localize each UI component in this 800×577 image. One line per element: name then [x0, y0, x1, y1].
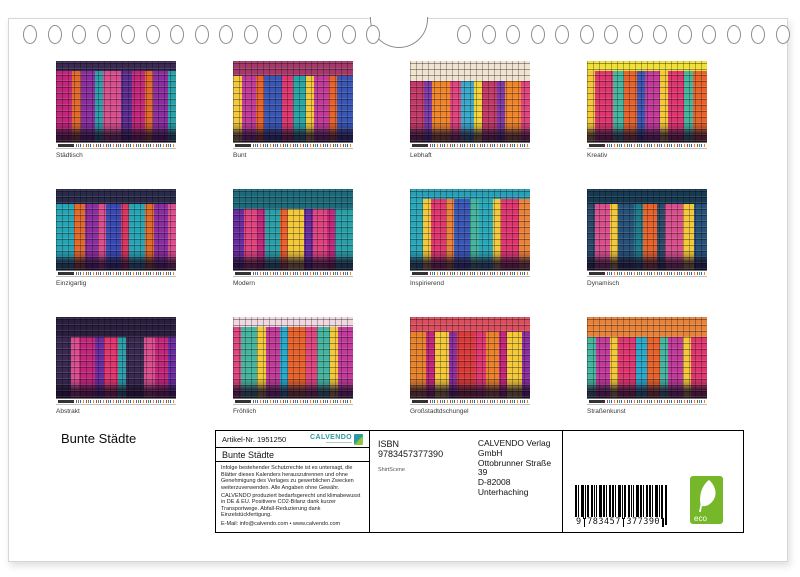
- binding-hole: [366, 25, 380, 44]
- barcode-bar: [661, 485, 663, 519]
- binding-hole: [317, 25, 331, 44]
- barcode-number: 9 783457 377390: [575, 517, 675, 527]
- spiral-binding: [9, 24, 787, 44]
- barcode-bar: [652, 485, 653, 519]
- thumbnail-label: Modern: [233, 280, 353, 288]
- barcode-bar: [585, 485, 586, 519]
- product-info-table: Artikel-Nr. 1951250 CALVENDO Bunte Städt…: [215, 430, 746, 533]
- barcode-bar: [636, 485, 639, 519]
- artwork-preview: [56, 317, 176, 398]
- legal-paragraph: Infolge bestehender Schutzrechte ist es …: [221, 465, 364, 491]
- mini-date-ticks: [76, 272, 174, 275]
- artwork-preview: [410, 61, 530, 142]
- mini-date-ticks: [253, 272, 351, 275]
- binding-hole: [506, 25, 520, 44]
- mini-date-strip: [587, 142, 707, 148]
- mini-month-name: [589, 144, 605, 147]
- artwork-preview: [233, 317, 353, 398]
- barcode-bar: [649, 485, 651, 519]
- thumbnail-label: Großstadtdschungel: [410, 408, 530, 416]
- binding-hole: [121, 25, 135, 44]
- publisher-city: D-82008 Unterhaching: [478, 477, 529, 497]
- barcode-bar: [622, 485, 623, 519]
- month-thumbnail: Kreativ: [587, 61, 707, 160]
- binding-hole: [72, 25, 86, 44]
- barcode-bar: [665, 485, 667, 525]
- mini-date-ticks: [430, 144, 528, 147]
- mini-date-strip: [410, 398, 530, 404]
- barcode-bar: [631, 485, 632, 519]
- mini-month-name: [235, 144, 251, 147]
- eco-logo: eco: [690, 476, 723, 524]
- mini-date-strip: [587, 270, 707, 276]
- thumbnail-label: Bunt: [233, 152, 353, 160]
- thumbnail-label: Einzigartig: [56, 280, 176, 288]
- month-thumbnail: Bunt: [233, 61, 353, 160]
- barcode-bar: [603, 485, 605, 519]
- mini-date-strip: [410, 142, 530, 148]
- thumbnail-label: Städtisch: [56, 152, 176, 160]
- mini-month-name: [412, 272, 428, 275]
- legal-paragraph: E-Mail: info@calvendo.com • www.calvendo…: [221, 521, 364, 527]
- barcode-bar: [581, 485, 584, 519]
- binding-hole: [268, 25, 282, 44]
- publisher-street: Ottobrunner Straße 39: [478, 458, 551, 478]
- barcode-bar: [633, 485, 634, 519]
- publisher-name: CALVENDO Verlag GmbH: [478, 438, 551, 458]
- barcode-bar: [628, 485, 630, 519]
- mini-month-name: [589, 400, 605, 403]
- artwork-preview: [587, 317, 707, 398]
- ean-barcode: 9 783457 377390: [575, 485, 675, 527]
- mini-date-ticks: [607, 400, 705, 403]
- binding-hole: [604, 25, 618, 44]
- barcode-bar: [646, 485, 648, 519]
- barcode-guard: [584, 518, 586, 527]
- binding-hole: [48, 25, 62, 44]
- barcode-bar: [591, 485, 593, 519]
- barcode-bar: [606, 485, 607, 519]
- month-thumbnail: Lebhaft: [410, 61, 530, 160]
- artwork-preview: [233, 61, 353, 142]
- barcode-bar: [659, 485, 660, 519]
- eco-label: eco: [694, 514, 707, 523]
- calvendo-logo: CALVENDO: [310, 434, 363, 445]
- mini-date-ticks: [253, 144, 351, 147]
- binding-hole: [776, 25, 790, 44]
- barcode-bar: [587, 485, 589, 519]
- mini-date-ticks: [607, 144, 705, 147]
- artwork-preview: [587, 189, 707, 270]
- binding-hole: [629, 25, 643, 44]
- month-thumbnail: Modern: [233, 189, 353, 288]
- mini-date-strip: [56, 270, 176, 276]
- mini-date-ticks: [607, 272, 705, 275]
- mini-date-strip: [56, 398, 176, 404]
- mini-month-name: [58, 144, 74, 147]
- artwork-preview: [56, 61, 176, 142]
- thumbnail-label: Straßenkunst: [587, 408, 707, 416]
- mini-date-ticks: [430, 272, 528, 275]
- binding-hole: [580, 25, 594, 44]
- binding-hole: [146, 25, 160, 44]
- calendar-title: Bunte Städte: [61, 431, 136, 446]
- legal-paragraph: CALVENDO produziert bedarfsgerecht und k…: [221, 493, 364, 519]
- barcode-guard: [623, 518, 625, 527]
- mini-date-ticks: [253, 400, 351, 403]
- thumbnail-label: Inspirierend: [410, 280, 530, 288]
- binding-hole: [293, 25, 307, 44]
- binding-hole: [342, 25, 356, 44]
- artwork-preview: [410, 189, 530, 270]
- binding-hole: [727, 25, 741, 44]
- barcode-bar: [615, 485, 616, 519]
- binding-hole: [170, 25, 184, 44]
- mini-date-strip: [233, 142, 353, 148]
- binding-hole: [702, 25, 716, 44]
- mini-date-strip: [410, 270, 530, 276]
- thumbnail-label: Dynamisch: [587, 280, 707, 288]
- mini-month-name: [412, 400, 428, 403]
- mini-date-strip: [233, 398, 353, 404]
- month-thumbnail: Großstadtdschungel: [410, 317, 530, 416]
- calendar-title-cell: Bunte Städte: [215, 447, 370, 462]
- thumbnail-label: Lebhaft: [410, 152, 530, 160]
- thumbnail-label: Abstrakt: [56, 408, 176, 416]
- mini-month-name: [58, 400, 74, 403]
- month-thumbnail: Dynamisch: [587, 189, 707, 288]
- month-thumbnail: Einzigartig: [56, 189, 176, 288]
- artwork-preview: [410, 317, 530, 398]
- binding-hole: [244, 25, 258, 44]
- barcode-bar: [640, 485, 642, 519]
- thumbnail-label: Kreativ: [587, 152, 707, 160]
- mini-date-ticks: [76, 144, 174, 147]
- calvendo-logo-text: CALVENDO: [310, 434, 352, 441]
- binding-hole: [219, 25, 233, 44]
- month-thumbnail: Abstrakt: [56, 317, 176, 416]
- barcode-bar: [643, 485, 644, 519]
- barcode-bar: [624, 485, 626, 519]
- legal-text-cell: Infolge bestehender Schutzrechte ist es …: [215, 461, 370, 533]
- month-thumbnail: Städtisch: [56, 61, 176, 160]
- isbn-text: ISBN 9783457377390: [378, 439, 453, 459]
- thumbnail-label: Fröhlich: [233, 408, 353, 416]
- author-credit: ShirtScene: [378, 467, 405, 473]
- barcode-bar: [594, 485, 595, 519]
- barcode-bar: [596, 485, 597, 519]
- month-thumbnail: Straßenkunst: [587, 317, 707, 416]
- mini-date-strip: [56, 142, 176, 148]
- leaf-icon: [695, 479, 719, 513]
- binding-hole: [195, 25, 209, 44]
- month-thumbnail: Inspirierend: [410, 189, 530, 288]
- artwork-preview: [56, 189, 176, 270]
- barcode-bar: [612, 485, 614, 519]
- binding-hole: [97, 25, 111, 44]
- artwork-preview: [233, 189, 353, 270]
- calvendo-logo-tagline: [326, 442, 352, 444]
- article-number-cell: Artikel-Nr. 1951250 CALVENDO: [215, 430, 370, 448]
- barcode-guard: [662, 518, 664, 527]
- calvendo-logo-icon: [354, 434, 363, 445]
- binding-hole: [678, 25, 692, 44]
- mini-date-strip: [233, 270, 353, 276]
- article-number: Artikel-Nr. 1951250: [222, 435, 286, 444]
- binding-hole: [23, 25, 37, 44]
- mini-date-strip: [587, 398, 707, 404]
- barcode-bar: [578, 485, 579, 519]
- publisher-address: CALVENDO Verlag GmbH Ottobrunner Straße …: [478, 439, 562, 498]
- mini-month-name: [235, 400, 251, 403]
- calendar-back-cover-page: StädtischBuntLebhaftKreativEinzigartigMo…: [8, 18, 788, 562]
- binding-hole: [653, 25, 667, 44]
- barcode-bar: [599, 485, 602, 519]
- binding-hole: [457, 25, 471, 44]
- mini-date-ticks: [430, 400, 528, 403]
- artwork-preview: [587, 61, 707, 142]
- month-thumbnail-grid: StädtischBuntLebhaftKreativEinzigartigMo…: [56, 61, 707, 416]
- barcode-bar: [609, 485, 611, 519]
- barcode-bar: [655, 485, 658, 519]
- mini-month-name: [235, 272, 251, 275]
- calendar-title-small: Bunte Städte: [222, 450, 274, 460]
- binding-hole: [751, 25, 765, 44]
- mini-month-name: [58, 272, 74, 275]
- mini-date-ticks: [76, 400, 174, 403]
- barcode-cell: 9 783457 377390 eco: [562, 430, 744, 533]
- binding-hole: [555, 25, 569, 44]
- mini-month-name: [589, 272, 605, 275]
- binding-hole: [531, 25, 545, 44]
- publisher-cell: ISBN 9783457377390 CALVENDO Verlag GmbH …: [369, 430, 563, 533]
- month-thumbnail: Fröhlich: [233, 317, 353, 416]
- mini-month-name: [412, 144, 428, 147]
- info-box-column: Artikel-Nr. 1951250 CALVENDO Bunte Städt…: [215, 430, 370, 533]
- binding-hole: [482, 25, 496, 44]
